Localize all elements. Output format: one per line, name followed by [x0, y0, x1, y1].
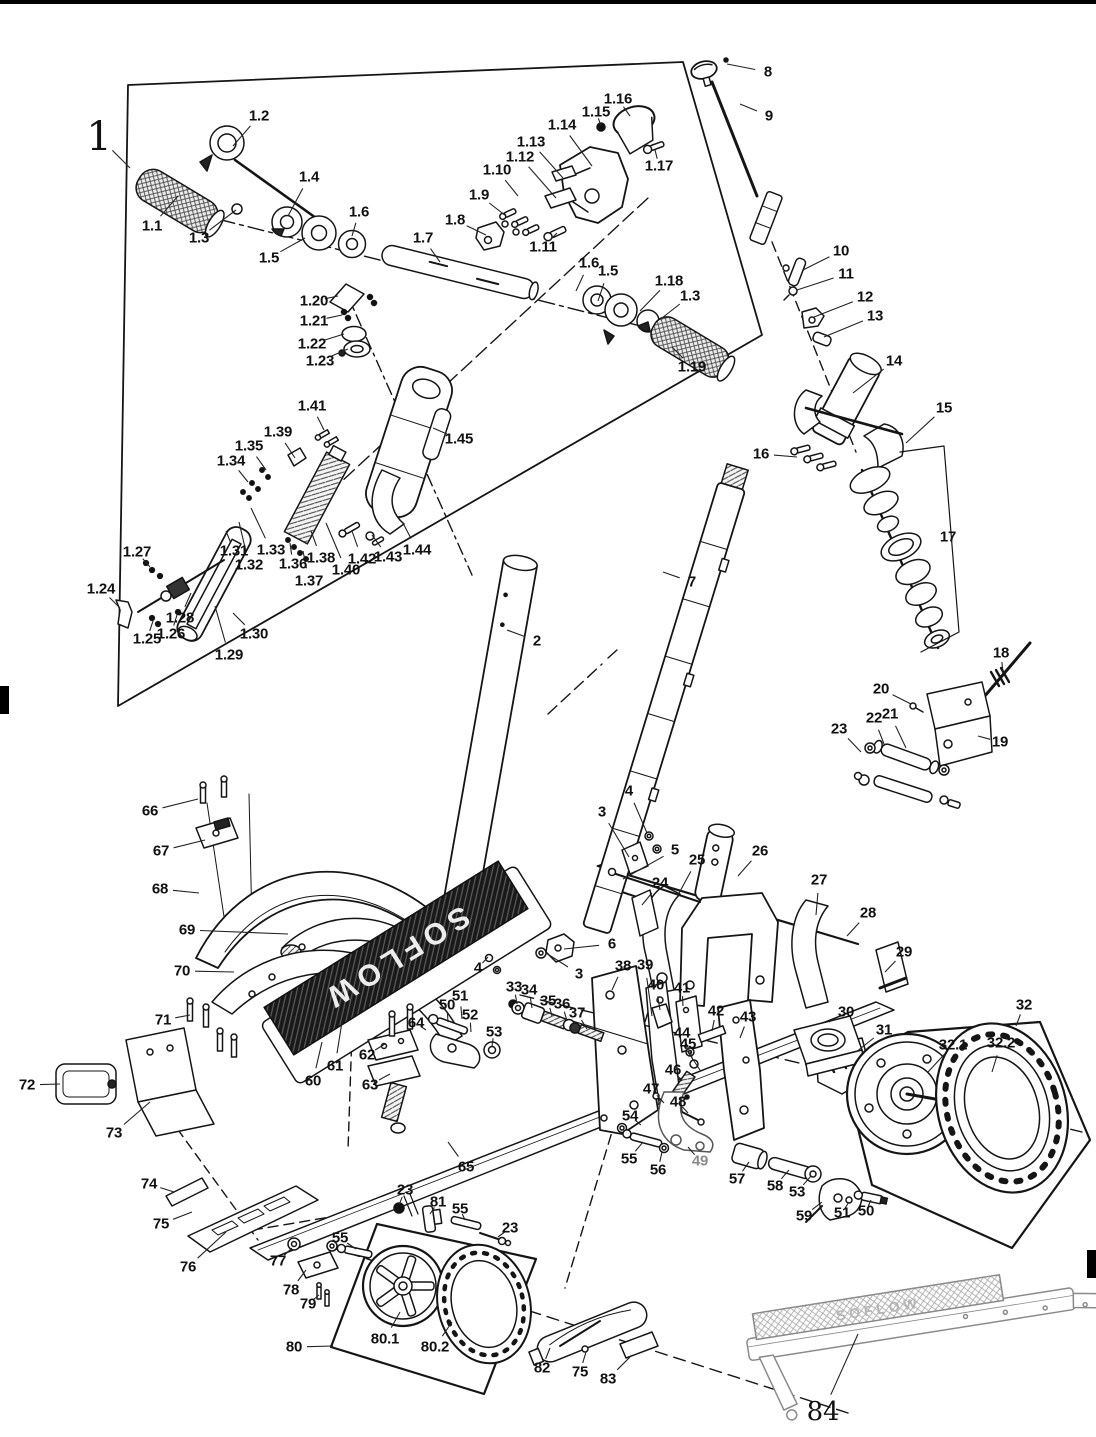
front-wheel-assembly [327, 1194, 658, 1373]
fork-swingarm-assembly [486, 822, 909, 1222]
handlebar-assembly [131, 126, 739, 385]
brake-lever-assembly [476, 101, 665, 250]
seatpost-fold-assembly [689, 58, 1030, 809]
inset-assembled-deck: SOFLOW [743, 1254, 1096, 1425]
exploded-parts-diagram: SOFLOW [0, 0, 1096, 1437]
rear-wheel-assembly [847, 1008, 1087, 1209]
headset-bearing-stack [846, 461, 952, 651]
small-screws [499, 208, 540, 237]
stem-clamp-assembly [116, 362, 463, 645]
diagram-artwork: SOFLOW [0, 0, 1096, 1437]
